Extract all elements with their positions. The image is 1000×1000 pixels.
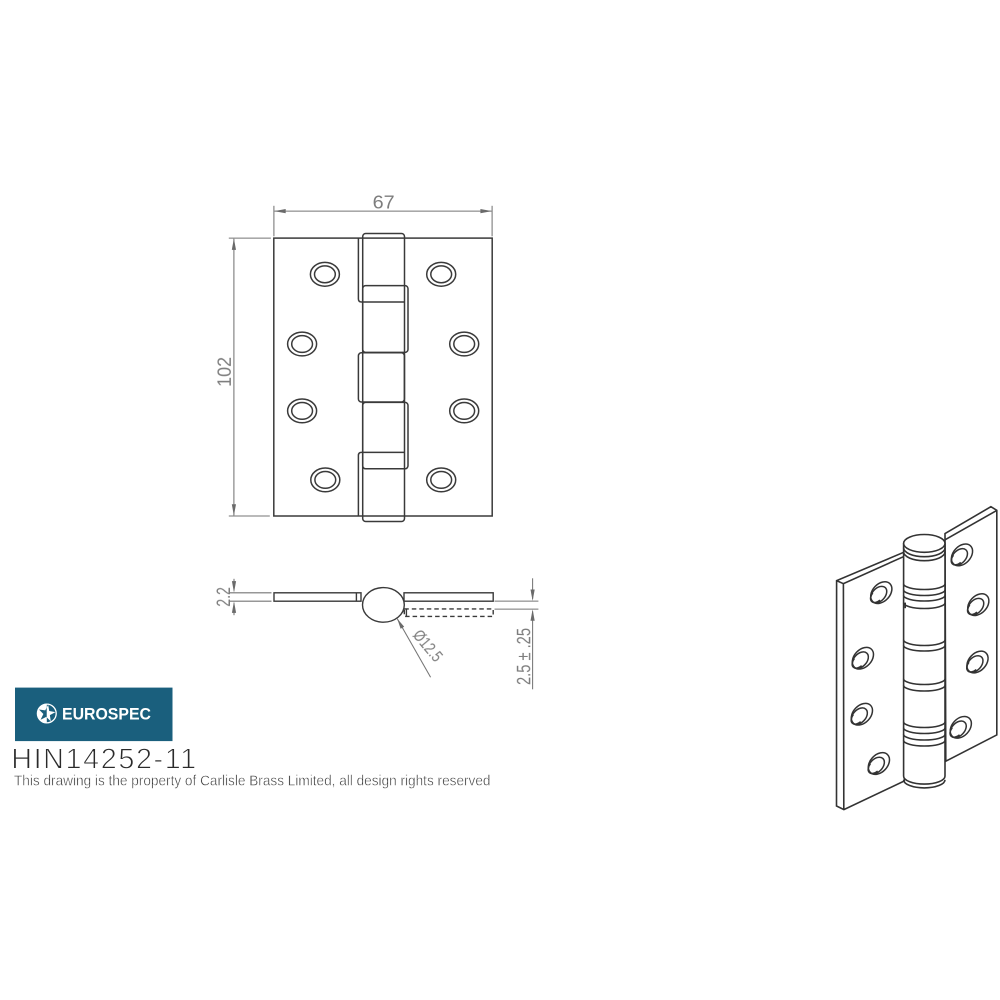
svg-text:2.5 ± .25: 2.5 ± .25 xyxy=(514,628,535,685)
svg-text:Ø12.5: Ø12.5 xyxy=(409,627,446,666)
svg-text:This drawing is the property o: This drawing is the property of Carlisle… xyxy=(14,772,491,789)
svg-text:HIN14252-11: HIN14252-11 xyxy=(11,744,196,776)
svg-text:67: 67 xyxy=(373,192,395,213)
svg-text:2.2: 2.2 xyxy=(214,587,235,607)
svg-text:EUROSPEC: EUROSPEC xyxy=(62,705,151,724)
svg-text:102: 102 xyxy=(214,357,236,387)
